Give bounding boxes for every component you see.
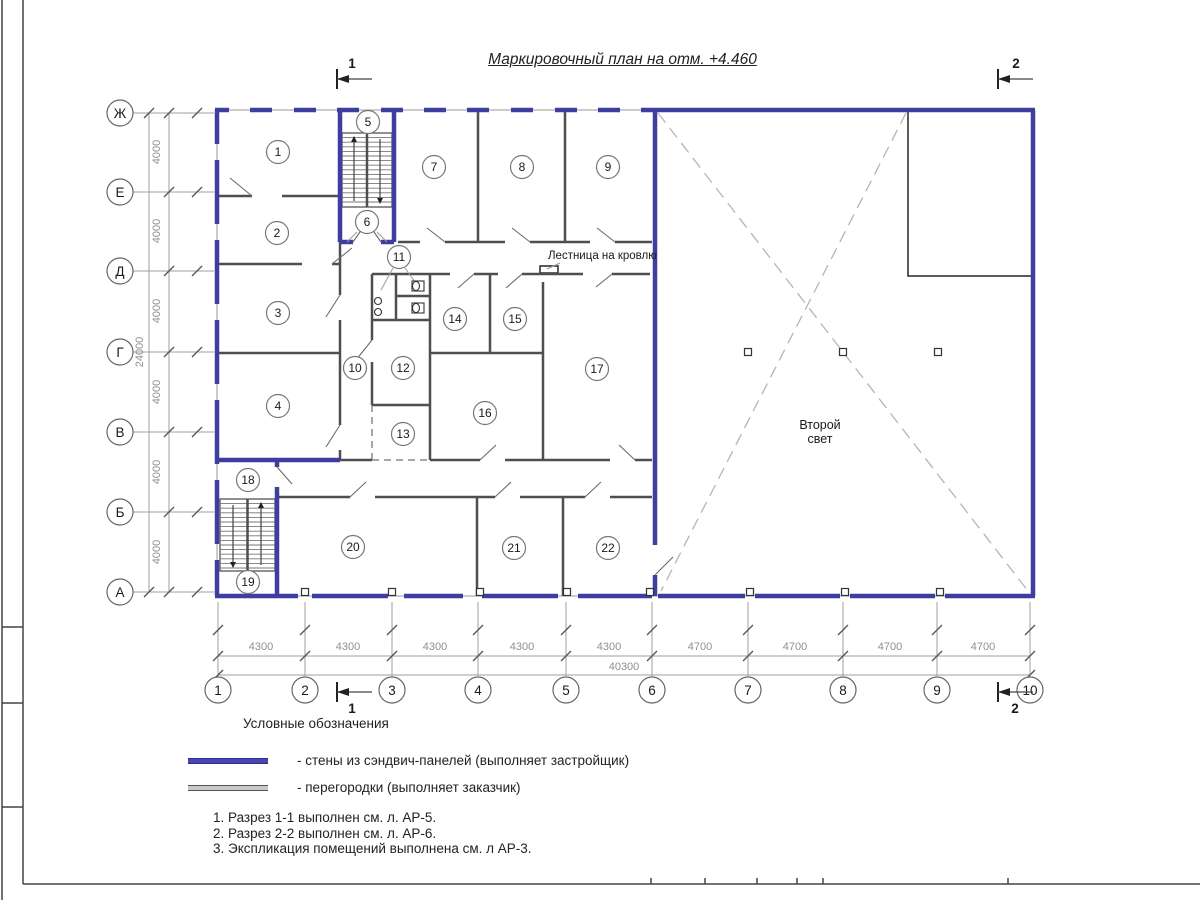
svg-text:22: 22	[601, 541, 615, 555]
svg-text:18: 18	[241, 473, 255, 487]
section-marks: 1212	[337, 56, 1033, 716]
room-number-circle: 14	[444, 308, 467, 331]
wc-fixtures	[375, 281, 425, 316]
room-number-circle: 22	[597, 537, 620, 560]
room-number-circle: 4	[267, 395, 290, 418]
svg-text:20: 20	[346, 540, 360, 554]
svg-text:2: 2	[1011, 701, 1019, 716]
svg-text:4000: 4000	[151, 299, 163, 323]
svg-text:7: 7	[431, 160, 438, 174]
notes-block: 1. Разрез 1-1 выполнен см. л. АР-5. 2. Р…	[213, 810, 532, 857]
roof-hatch	[540, 266, 558, 273]
svg-text:19: 19	[241, 575, 255, 589]
section-arrow	[337, 688, 349, 696]
svg-text:свет: свет	[807, 432, 832, 446]
svg-text:4700: 4700	[878, 641, 902, 653]
svg-text:4300: 4300	[249, 641, 273, 653]
legend-heading: Условные обозначения	[243, 716, 389, 731]
note-line: 3. Экспликация помещений выполнена см. л…	[213, 841, 532, 857]
svg-text:1: 1	[348, 701, 356, 716]
column-marker	[564, 589, 571, 596]
svg-text:4000: 4000	[151, 380, 163, 404]
room-number-circle: 3	[267, 302, 290, 325]
column-marker	[840, 349, 847, 356]
svg-text:24000: 24000	[134, 337, 146, 368]
svg-text:Ж: Ж	[114, 106, 127, 121]
room-number-circle: 11	[388, 246, 411, 269]
svg-text:5: 5	[365, 115, 372, 129]
svg-text:8: 8	[519, 160, 526, 174]
svg-text:21: 21	[507, 541, 521, 555]
svg-text:3: 3	[388, 683, 396, 698]
drawing-sheet: 4000400040004000400040002400043004300430…	[0, 0, 1200, 900]
svg-text:В: В	[115, 425, 124, 440]
legend-swatch-sandwich-wall	[188, 758, 268, 764]
svg-text:9: 9	[605, 160, 612, 174]
room-number-circle: 7	[423, 156, 446, 179]
column-marker	[477, 589, 484, 596]
svg-text:16: 16	[478, 406, 492, 420]
svg-text:3: 3	[275, 306, 282, 320]
room-number-circle: 12	[392, 357, 415, 380]
svg-text:7: 7	[744, 683, 752, 698]
floor-opening-outline	[908, 110, 1032, 276]
note-line: 2. Разрез 2-2 выполнен см. л. АР-6.	[213, 826, 532, 842]
room-number-circle: 9	[597, 156, 620, 179]
section-arrow	[998, 75, 1010, 83]
room-number-circle: 1	[267, 141, 290, 164]
svg-text:14: 14	[448, 312, 462, 326]
svg-text:Д: Д	[115, 264, 124, 279]
legend-label-sandwich-wall: - стены из сэндвич-панелей (выполняет за…	[297, 753, 629, 768]
svg-text:4000: 4000	[151, 140, 163, 164]
svg-text:4300: 4300	[336, 641, 360, 653]
plan-texts: Лестница на кровлюВторойсвет	[548, 250, 841, 446]
room-number-circle: 17	[586, 358, 609, 381]
svg-text:4: 4	[474, 683, 482, 698]
room-number-circle: 18	[237, 469, 260, 492]
sink-symbol	[375, 298, 382, 305]
legend-label-partition: - перегородки (выполняет заказчик)	[297, 780, 521, 795]
svg-text:А: А	[115, 585, 124, 600]
svg-text:10: 10	[348, 361, 362, 375]
room-number-circle: 20	[342, 536, 365, 559]
svg-text:4300: 4300	[423, 641, 447, 653]
svg-text:2: 2	[1012, 56, 1020, 71]
column-marker	[842, 589, 849, 596]
room-number-circle: 16	[474, 402, 497, 425]
note-line: 1. Разрез 1-1 выполнен см. л. АР-5.	[213, 810, 532, 826]
svg-text:Лестница на кровлю: Лестница на кровлю	[548, 250, 657, 262]
room-number-circle: 8	[511, 156, 534, 179]
svg-text:4000: 4000	[151, 540, 163, 564]
svg-text:4300: 4300	[597, 641, 621, 653]
column-marker	[302, 589, 309, 596]
svg-text:4300: 4300	[510, 641, 534, 653]
column-marker	[647, 589, 654, 596]
svg-text:4700: 4700	[783, 641, 807, 653]
sink-symbol	[375, 309, 382, 316]
column-marker	[747, 589, 754, 596]
svg-text:15: 15	[508, 312, 522, 326]
section-arrow	[337, 75, 349, 83]
svg-text:4000: 4000	[151, 219, 163, 243]
svg-text:10: 10	[1022, 683, 1037, 698]
column-marker	[745, 349, 752, 356]
column-marker	[389, 589, 396, 596]
legend-swatch-partition	[188, 785, 268, 791]
section-arrow	[998, 688, 1010, 696]
svg-text:11: 11	[393, 250, 406, 264]
svg-text:13: 13	[396, 427, 410, 441]
room-number-circle: 15	[504, 308, 527, 331]
column-markers	[302, 349, 944, 596]
svg-text:Второй: Второй	[799, 418, 840, 432]
svg-text:9: 9	[933, 683, 941, 698]
svg-text:17: 17	[590, 362, 604, 376]
room-number-circle: 6	[356, 211, 379, 234]
svg-text:4700: 4700	[971, 641, 995, 653]
room-number-circle: 19	[237, 571, 260, 594]
axis-grid: ЖЕДГВБА12345678910	[107, 100, 1043, 703]
svg-text:12: 12	[396, 361, 410, 375]
svg-text:6: 6	[648, 683, 656, 698]
drawing-title: Маркировочный план на отм. +4.460	[450, 51, 795, 69]
door-leaves	[230, 178, 673, 575]
svg-text:40300: 40300	[609, 661, 640, 673]
room-number-circle: 5	[357, 111, 380, 134]
svg-text:4000: 4000	[151, 460, 163, 484]
column-marker	[937, 589, 944, 596]
svg-text:2: 2	[301, 683, 309, 698]
svg-text:4: 4	[275, 399, 282, 413]
svg-text:5: 5	[562, 683, 570, 698]
svg-text:Е: Е	[115, 185, 124, 200]
svg-text:4700: 4700	[688, 641, 712, 653]
partition-walls	[217, 110, 652, 596]
svg-text:1: 1	[275, 145, 282, 159]
svg-text:6: 6	[364, 215, 371, 229]
svg-text:1: 1	[348, 56, 356, 71]
room-number-circle: 2	[266, 222, 289, 245]
room-number-circle: 21	[503, 537, 526, 560]
svg-text:Г: Г	[116, 345, 124, 360]
svg-text:2: 2	[274, 226, 281, 240]
svg-text:1: 1	[214, 683, 222, 698]
svg-text:8: 8	[839, 683, 847, 698]
room-number-circle: 10	[344, 357, 367, 380]
room-number-circle: 13	[392, 423, 415, 446]
column-marker	[935, 349, 942, 356]
svg-text:Б: Б	[116, 505, 125, 520]
